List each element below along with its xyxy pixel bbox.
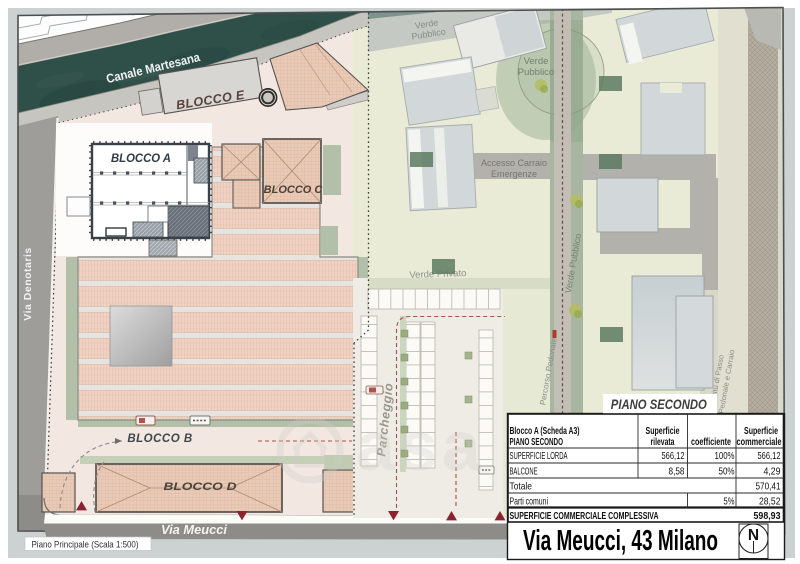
svg-text:Parti comuni: Parti comuni — [510, 497, 549, 508]
svg-text:BLOCCO A: BLOCCO A — [111, 151, 171, 165]
svg-text:566,12: 566,12 — [758, 451, 781, 462]
svg-text:SUPERFICIE COMMERCIALE COMPLES: SUPERFICIE COMMERCIALE COMPLESSIVA — [510, 511, 659, 522]
svg-text:BLOCCO D: BLOCCO D — [164, 481, 237, 493]
svg-text:598,93: 598,93 — [754, 511, 781, 522]
svg-text:Accesso Carraio: Accesso Carraio — [481, 158, 547, 168]
svg-text:BALCONE: BALCONE — [510, 467, 538, 478]
svg-text:566,12: 566,12 — [662, 451, 685, 462]
svg-text:Totale: Totale — [510, 482, 533, 493]
svg-text:Via Meucci, 43 Milano: Via Meucci, 43 Milano — [523, 525, 718, 557]
svg-text:Blocco A (Scheda A3): Blocco A (Scheda A3) — [510, 426, 580, 437]
svg-text:Superficie: Superficie — [646, 426, 680, 437]
svg-text:commerciale: commerciale — [737, 437, 782, 448]
svg-text:coefficiente: coefficiente — [691, 437, 731, 448]
svg-text:BLOCCO B: BLOCCO B — [127, 433, 192, 445]
svg-text:50%: 50% — [719, 467, 735, 478]
svg-text:BLOCCO C: BLOCCO C — [264, 184, 324, 196]
svg-text:Superficie: Superficie — [744, 426, 778, 437]
svg-text:Via Denotaris: Via Denotaris — [22, 247, 34, 320]
svg-text:SUPERFICIE LORDA: SUPERFICIE LORDA — [510, 451, 568, 462]
svg-text:PIANO SECONDO: PIANO SECONDO — [611, 396, 707, 412]
svg-text:rilevata: rilevata — [651, 437, 675, 448]
svg-text:asa: asa — [356, 407, 485, 485]
svg-text:PIANO SECONDO: PIANO SECONDO — [510, 437, 564, 448]
svg-text:Via Meucci: Via Meucci — [161, 523, 228, 537]
svg-text:Piano Principale (Scala 1:500): Piano Principale (Scala 1:500) — [32, 540, 139, 551]
svg-text:Emergenze: Emergenze — [491, 169, 537, 179]
svg-text:8,58: 8,58 — [669, 467, 685, 478]
svg-text:5%: 5% — [724, 497, 735, 508]
svg-text:100%: 100% — [715, 451, 735, 462]
svg-text:28,52: 28,52 — [759, 497, 781, 508]
svg-text:Pubblico: Pubblico — [518, 67, 554, 78]
svg-text:Verde: Verde — [524, 56, 549, 67]
svg-text:4,29: 4,29 — [764, 467, 781, 478]
svg-text:570,41: 570,41 — [756, 482, 781, 493]
